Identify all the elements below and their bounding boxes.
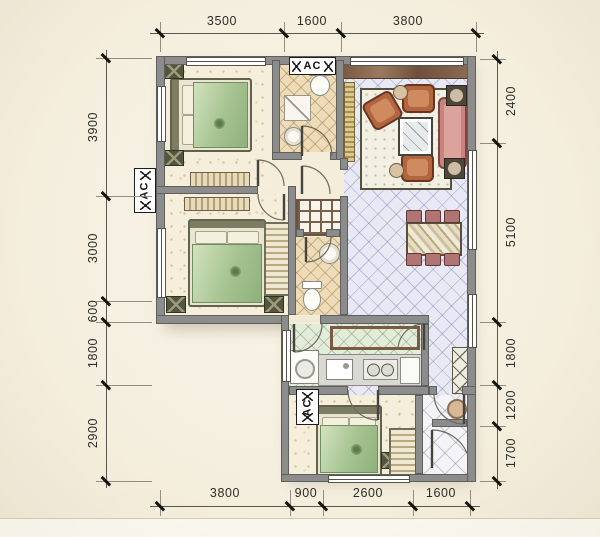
paper-edge [0,518,600,537]
dim-right-5: 1700 [504,438,518,468]
dim-ext [323,490,324,516]
dim-left-5: 2900 [86,418,100,448]
dim-bottom-3: 2600 [353,486,383,500]
dim-line-right [497,51,498,489]
door-arc [258,126,467,453]
dim-right-4: 1200 [504,390,518,420]
dim-bottom-4: 1600 [426,486,456,500]
door-leaf [258,126,464,468]
ac-label: AC [302,398,313,416]
dim-ext [413,490,414,516]
ac-mark-icon [324,61,333,72]
ac-mark-icon [140,171,151,180]
dim-ext [160,490,161,516]
dim-right-3: 1800 [504,338,518,368]
dim-ext [160,22,161,52]
dim-right-1: 2400 [504,86,518,116]
dim-left-3: 600 [86,300,100,323]
ac-platform-left: AC [134,168,156,213]
dim-line-bottom [150,506,480,507]
ac-mark-icon [140,201,151,210]
dim-ext [290,490,291,516]
dim-left-4: 1800 [86,338,100,368]
dim-line-top [150,33,484,34]
dim-ext [284,22,285,52]
dim-top-1: 3500 [207,14,237,28]
dim-ext [480,59,506,60]
dim-right-2: 5100 [504,217,518,247]
dim-top-3: 3800 [393,14,423,28]
dim-ext [480,481,506,482]
ac-platform-bottom: AC [296,389,319,425]
dim-left-2: 3000 [86,233,100,263]
dim-ext [480,143,506,144]
ac-mark-icon [292,61,301,72]
floor-plan: AC AC AC 3500 1600 3800 3800 900 2600 16… [0,0,600,536]
dim-line-left [106,50,107,488]
dim-ext [341,22,342,52]
dim-bottom-2: 900 [295,486,318,500]
ac-platform-top: AC [289,57,336,75]
dim-left-1: 3900 [86,112,100,142]
dim-ext [480,426,506,427]
dim-ext [480,322,506,323]
ac-label: AC [304,61,322,72]
dim-bottom-1: 3800 [210,486,240,500]
dim-ext [476,22,477,52]
dim-top-2: 1600 [297,14,327,28]
dim-ext [470,490,471,516]
dim-ext [480,385,506,386]
